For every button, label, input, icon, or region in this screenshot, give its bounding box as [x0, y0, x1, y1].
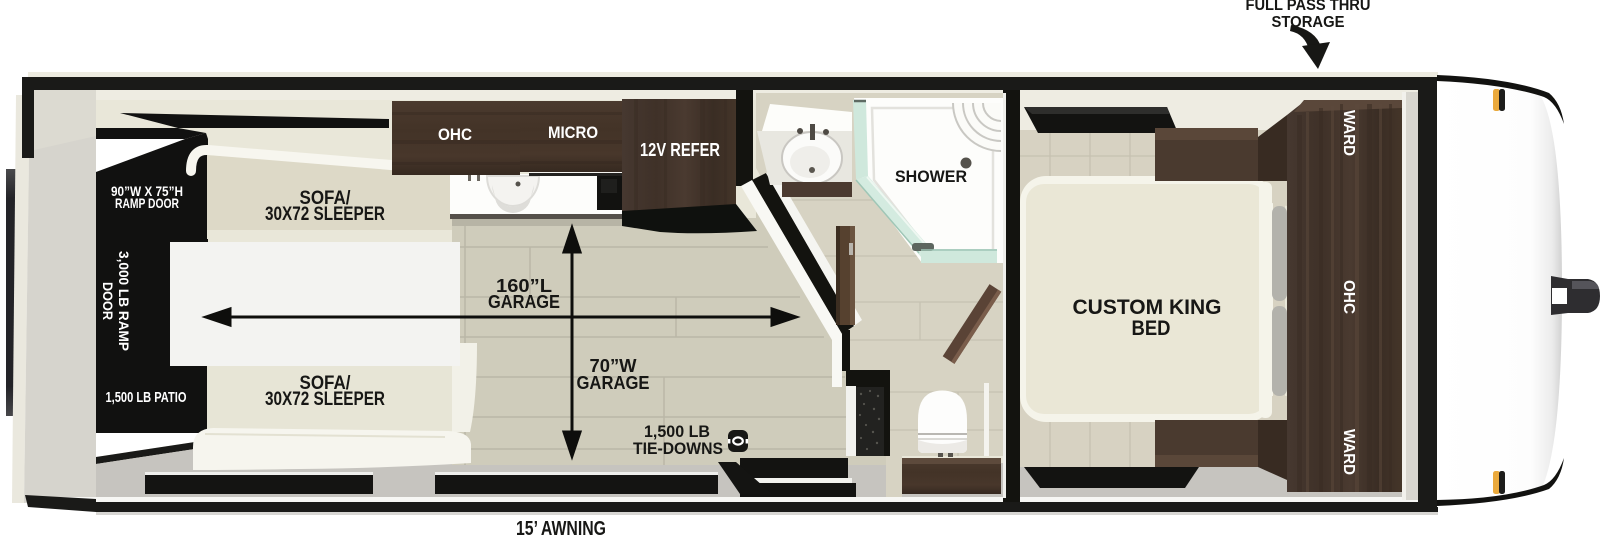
svg-text:15’ AWNING: 15’ AWNING	[516, 518, 606, 536]
svg-text:SHOWER: SHOWER	[895, 168, 967, 186]
svg-text:OHC: OHC	[1340, 280, 1357, 314]
svg-text:STORAGE: STORAGE	[1272, 14, 1345, 31]
svg-text:12V REFER: 12V REFER	[640, 140, 720, 160]
svg-text:WARD: WARD	[1340, 429, 1357, 475]
svg-text:30X72 SLEEPER: 30X72 SLEEPER	[265, 204, 385, 225]
svg-text:3,000 LB RAMP: 3,000 LB RAMP	[116, 251, 132, 351]
svg-text:GARAGE: GARAGE	[577, 373, 650, 393]
svg-text:30X72 SLEEPER: 30X72 SLEEPER	[265, 389, 385, 410]
svg-text:1,500 LB PATIO: 1,500 LB PATIO	[106, 389, 187, 406]
svg-text:RAMP DOOR: RAMP DOOR	[115, 195, 179, 211]
svg-text:MICRO: MICRO	[548, 124, 598, 142]
svg-text:OHC: OHC	[438, 126, 472, 144]
svg-text:WARD: WARD	[1340, 110, 1357, 156]
svg-text:GARAGE: GARAGE	[488, 292, 560, 312]
svg-text:DOOR: DOOR	[100, 282, 116, 320]
svg-text:BED: BED	[1132, 317, 1171, 340]
svg-text:FULL PASS THRU: FULL PASS THRU	[1246, 0, 1371, 14]
svg-text:TIE-DOWNS: TIE-DOWNS	[633, 439, 723, 458]
svg-text:CUSTOM KING: CUSTOM KING	[1073, 296, 1222, 319]
